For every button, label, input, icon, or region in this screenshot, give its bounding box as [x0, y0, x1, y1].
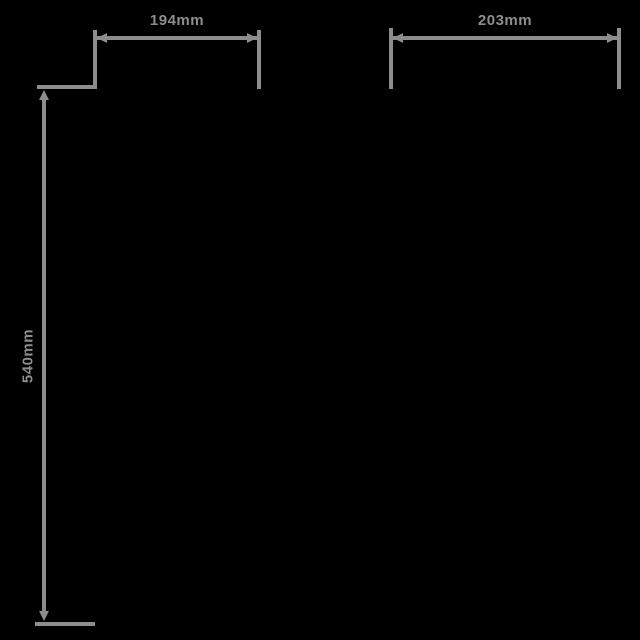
witness-line-bottom: [35, 622, 95, 626]
arrow-left-icon: [97, 33, 107, 43]
dimension-label-top-right: 203mm: [393, 12, 617, 29]
arrow-right-icon: [607, 33, 617, 43]
witness-line-right: [617, 28, 621, 89]
dimension-line: [97, 36, 257, 40]
arrow-down-icon: [39, 611, 49, 621]
diagram-canvas: 194mm 203mm 540mm: [0, 0, 640, 640]
dimension-label-wrap: 540mm: [20, 329, 37, 383]
dimension-label-left-vertical: 540mm: [20, 329, 37, 383]
arrow-left-icon: [393, 33, 403, 43]
arrow-up-icon: [39, 90, 49, 100]
witness-line-top: [37, 85, 95, 89]
witness-line-right: [257, 30, 261, 89]
dimension-line: [393, 36, 617, 40]
arrow-right-icon: [247, 33, 257, 43]
dimension-line: [42, 95, 46, 617]
dimension-label-top-left: 194mm: [97, 12, 257, 29]
